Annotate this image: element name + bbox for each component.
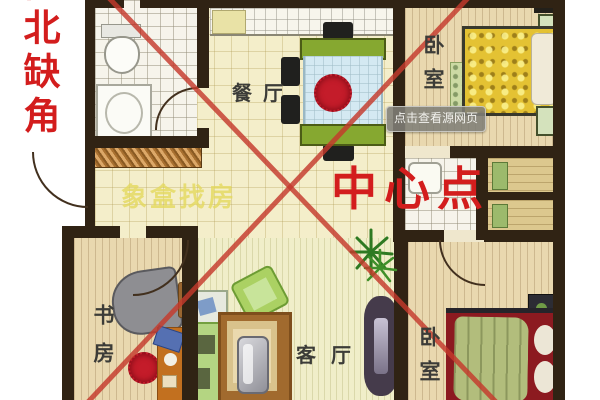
source-tooltip[interactable]: 点击查看源网页 (386, 106, 486, 132)
room-label-study: 书房 (92, 304, 113, 380)
center-point-label: 中心点 (331, 166, 490, 212)
room-label-bedroom-se: 卧室 (418, 326, 439, 394)
corner-note-label: 西北缺角 (20, 0, 57, 140)
room-label-dining: 餐厅 (232, 84, 294, 104)
room-label-bedroom-ne: 卧室 (422, 34, 443, 102)
diagonal-lines-layer (0, 0, 600, 400)
room-label-living: 客厅 (296, 346, 366, 366)
floorplan-screenshot: 西北缺角 中心点 象盒找房 点击查看源网页 餐厅 卧室 卧室 书房 客厅 (0, 0, 600, 400)
